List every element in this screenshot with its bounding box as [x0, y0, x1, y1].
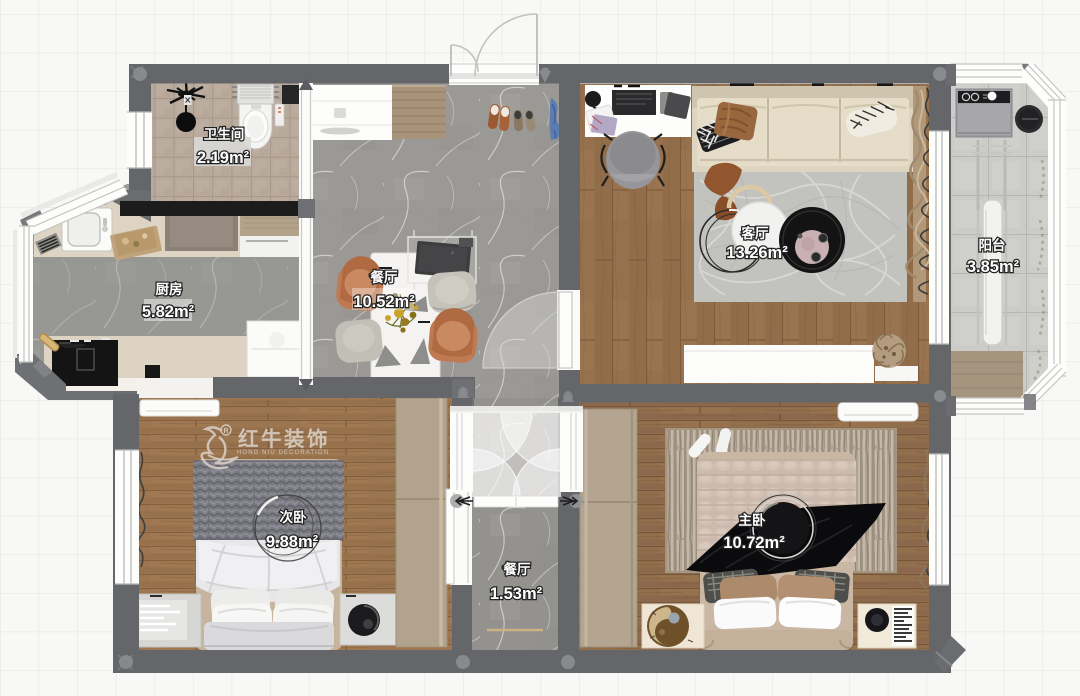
svg-text:10.72m²: 10.72m²: [723, 534, 785, 552]
svg-text:客厅: 客厅: [741, 225, 770, 241]
svg-text:13.26m²: 13.26m²: [726, 244, 788, 262]
svg-text:红牛装饰: 红牛装饰: [238, 427, 330, 451]
svg-text:厨房: 厨房: [156, 281, 183, 297]
svg-text:次卧: 次卧: [280, 509, 307, 525]
svg-text:主卧: 主卧: [739, 512, 767, 528]
svg-text:1.53m²: 1.53m²: [490, 585, 543, 603]
svg-text:阳台: 阳台: [979, 237, 1006, 253]
svg-text:10.52m²: 10.52m²: [353, 293, 415, 311]
svg-text:餐厅: 餐厅: [503, 561, 532, 577]
svg-text:2.19m²: 2.19m²: [197, 149, 250, 167]
svg-text:5.82m²: 5.82m²: [142, 303, 195, 321]
svg-text:餐厅: 餐厅: [370, 269, 398, 285]
svg-text:R: R: [223, 428, 228, 435]
svg-text:9.88m²: 9.88m²: [266, 533, 319, 551]
svg-text:卫生间: 卫生间: [204, 126, 245, 142]
svg-text:HONG NIU DECORATION: HONG NIU DECORATION: [237, 450, 329, 456]
svg-text:3.85m²: 3.85m²: [967, 258, 1020, 276]
